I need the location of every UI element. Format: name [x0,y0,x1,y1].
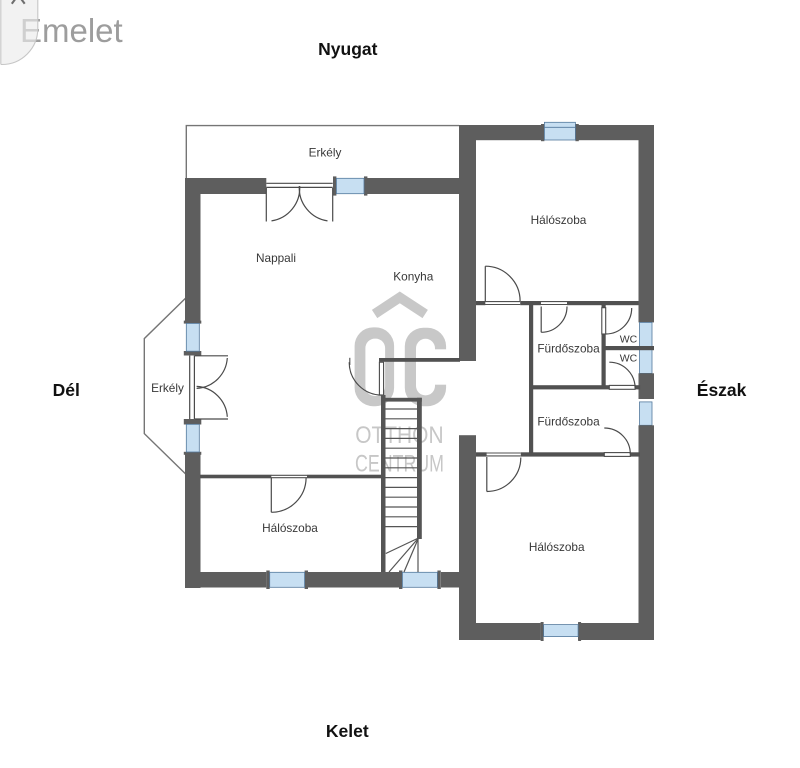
svg-text:Nappali: Nappali [256,251,296,265]
svg-text:WC: WC [620,352,638,364]
svg-text:Konyha: Konyha [393,269,433,283]
svg-text:Erkély: Erkély [151,381,184,395]
svg-text:WC: WC [620,333,638,345]
svg-text:Hálószoba: Hálószoba [262,521,318,535]
svg-text:Fürdőszoba: Fürdőszoba [537,341,600,355]
svg-text:Erkély: Erkély [309,145,342,159]
svg-text:OTTHON: OTTHON [355,422,443,449]
svg-text:Nyugat: Nyugat [318,39,377,59]
svg-text:Hálószoba: Hálószoba [531,213,587,227]
svg-text:Észak: Észak [697,379,747,400]
svg-text:CENTRUM: CENTRUM [355,451,444,478]
svg-text:Fürdőszoba: Fürdőszoba [537,414,600,428]
svg-text:Kelet: Kelet [326,721,369,741]
svg-text:Dél: Dél [53,380,80,400]
svg-text:Hálószoba: Hálószoba [529,540,585,554]
